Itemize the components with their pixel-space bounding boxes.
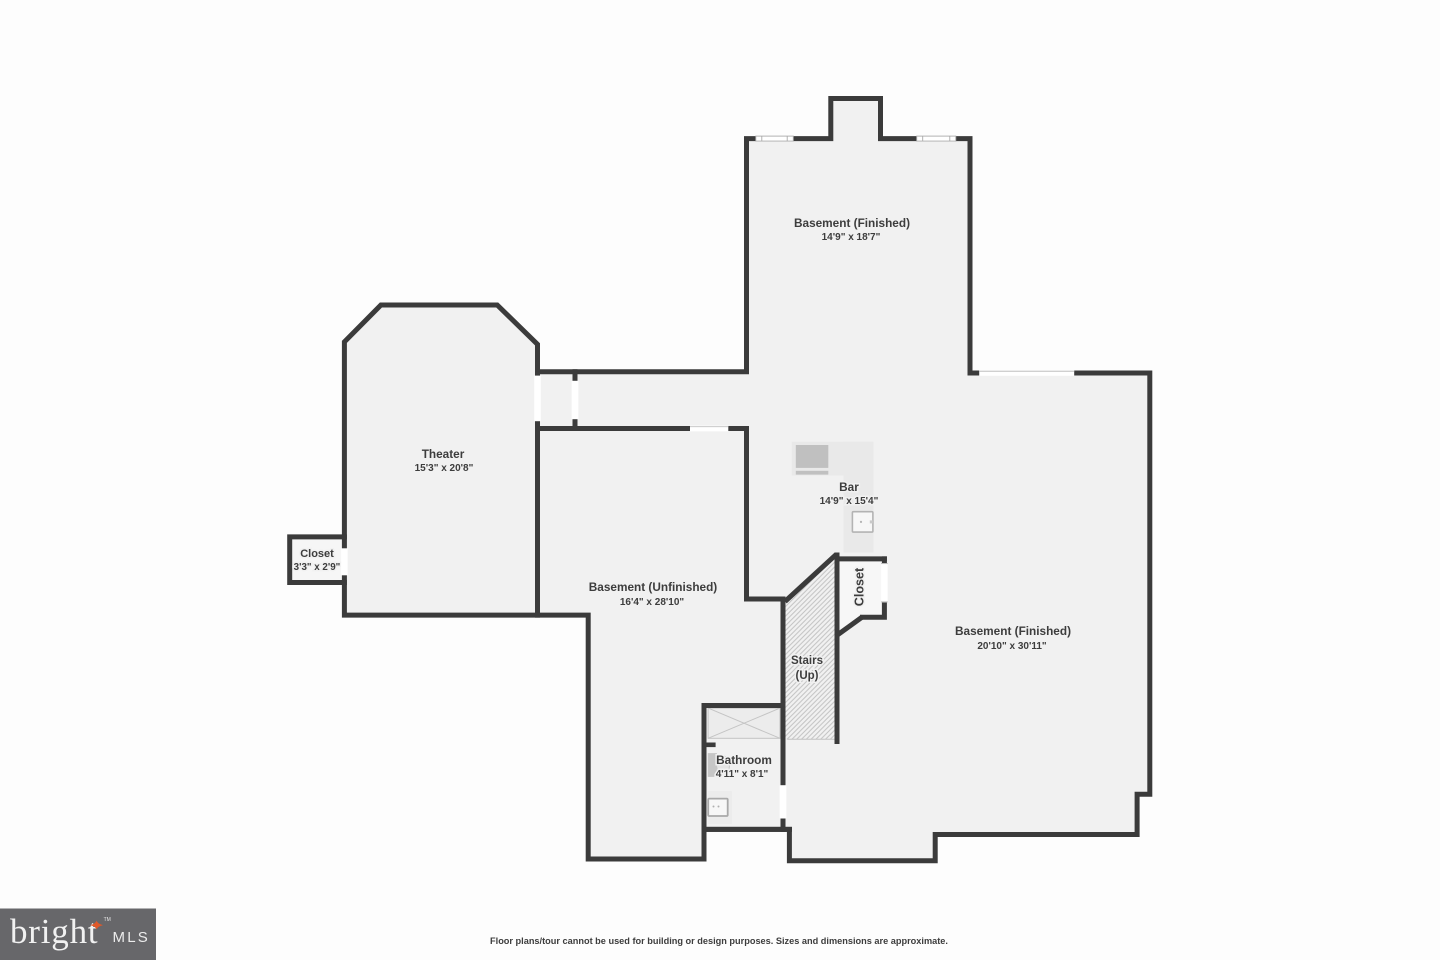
svg-text:14'9" x 18'7": 14'9" x 18'7" xyxy=(822,232,881,243)
svg-text:Bathroom: Bathroom xyxy=(716,753,772,767)
svg-text:Basement (Finished): Basement (Finished) xyxy=(794,216,910,230)
svg-text:Closet: Closet xyxy=(853,567,867,606)
svg-text:Basement (Finished): Basement (Finished) xyxy=(955,624,1071,638)
svg-text:Bar: Bar xyxy=(839,480,859,494)
svg-text:Closet: Closet xyxy=(300,548,334,560)
svg-text:Basement (Unfinished): Basement (Unfinished) xyxy=(589,580,718,594)
svg-text:16'4" x 28'10": 16'4" x 28'10" xyxy=(620,597,685,608)
svg-text:bright: bright xyxy=(10,912,98,951)
svg-text:Theater: Theater xyxy=(422,447,465,461)
svg-text:4'11" x 8'1": 4'11" x 8'1" xyxy=(716,769,769,780)
svg-text:14'9" x 15'4": 14'9" x 15'4" xyxy=(820,496,879,507)
svg-text:3'3" x 2'9": 3'3" x 2'9" xyxy=(294,562,341,573)
svg-text:Stairs: Stairs xyxy=(791,655,823,667)
svg-text:MLS: MLS xyxy=(113,929,150,946)
svg-text:Floor plans/tour cannot be use: Floor plans/tour cannot be used for buil… xyxy=(490,936,948,946)
svg-text:20'10" x 30'11": 20'10" x 30'11" xyxy=(977,641,1047,652)
svg-text:15'3" x 20'8": 15'3" x 20'8" xyxy=(415,463,474,474)
svg-text:(Up): (Up) xyxy=(796,670,819,682)
svg-text:TM: TM xyxy=(104,917,111,923)
